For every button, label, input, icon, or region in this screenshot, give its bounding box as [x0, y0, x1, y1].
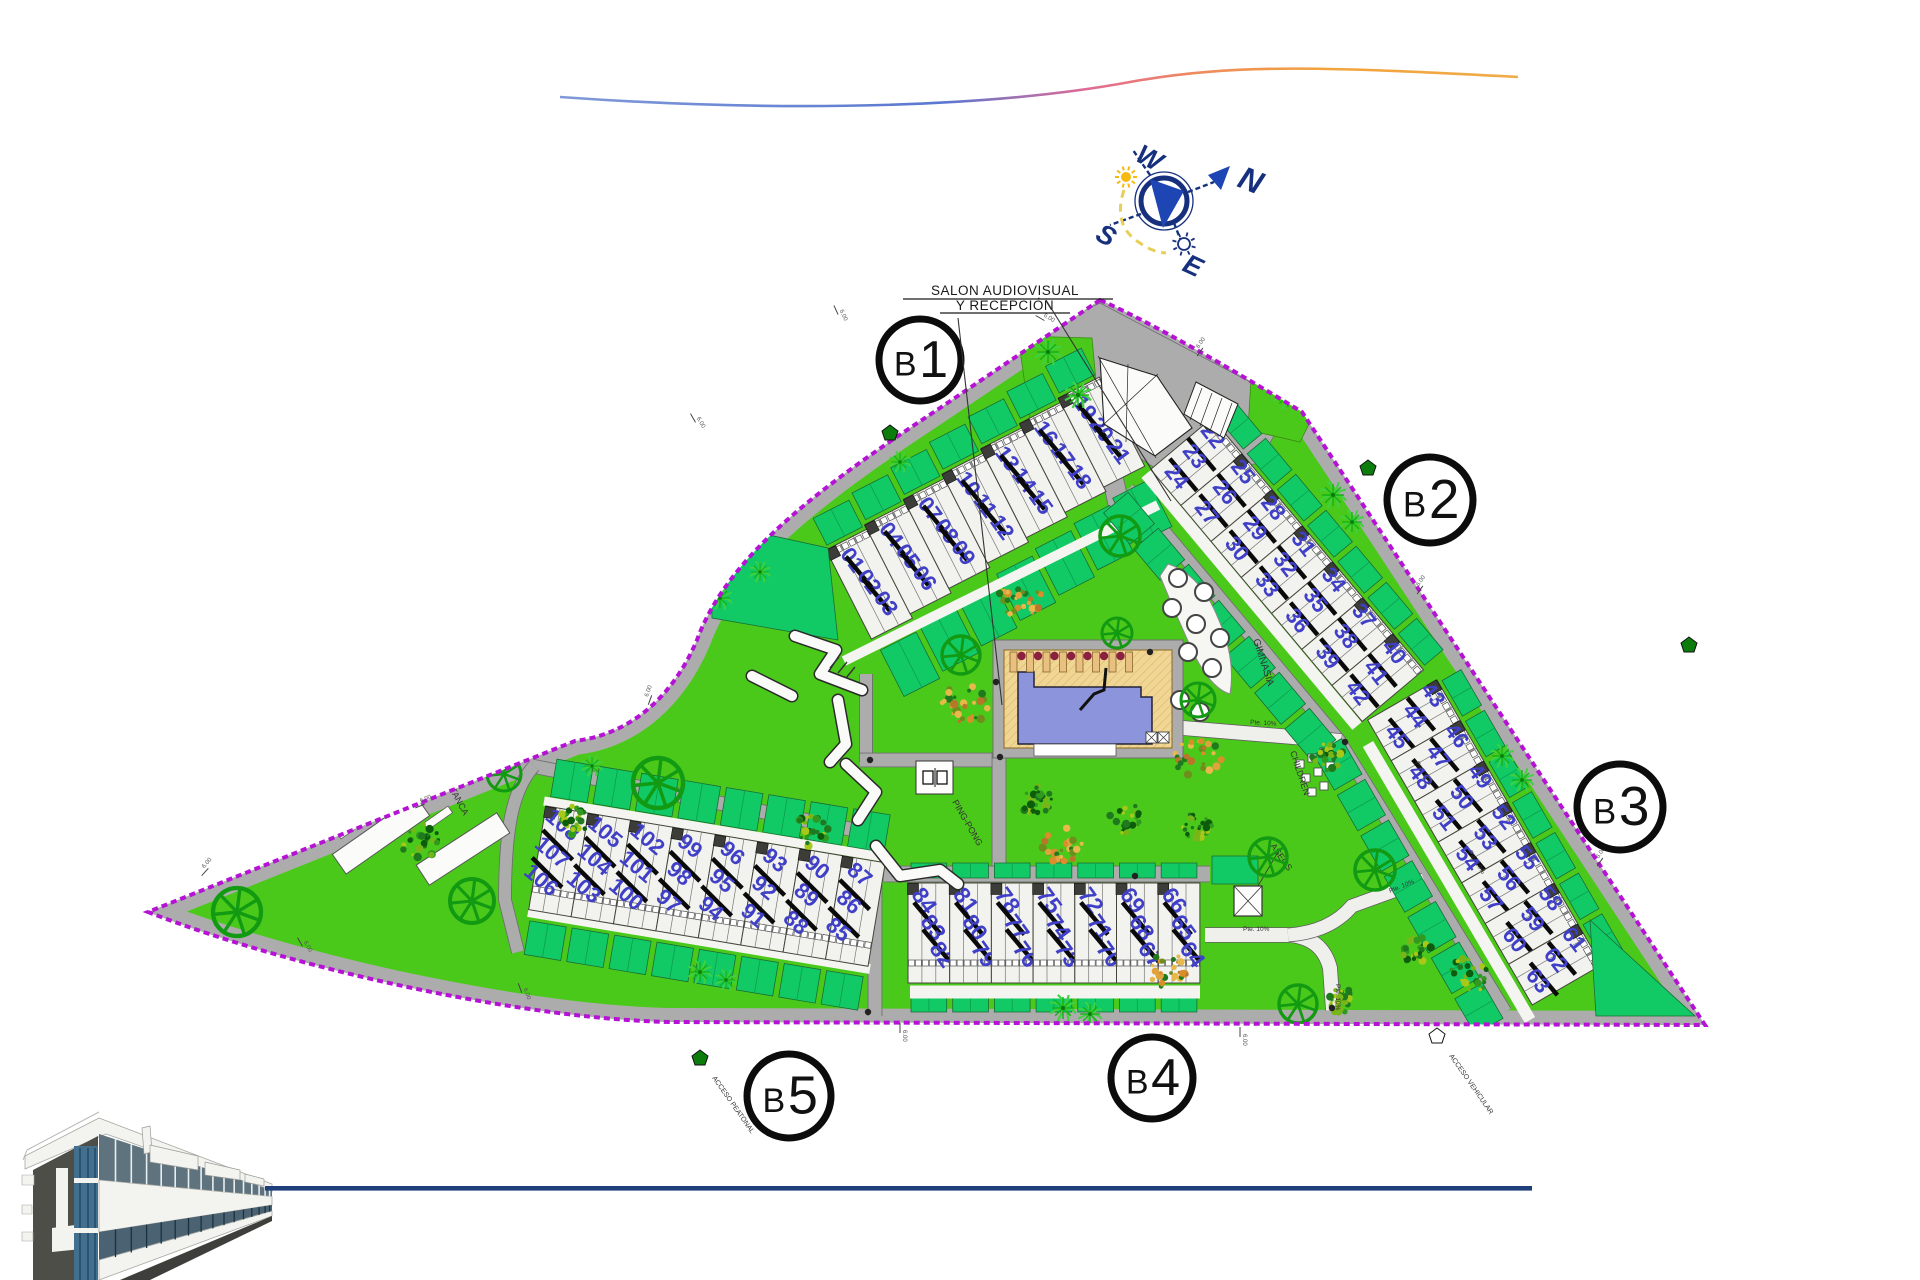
svg-text:4: 4 [1151, 1049, 1180, 1107]
svg-text:3: 3 [1619, 775, 1650, 837]
svg-text:6.00: 6.00 [1241, 1034, 1247, 1046]
svg-text:Pte. 10%: Pte. 10% [1243, 926, 1270, 933]
svg-text:6.00: 6.00 [901, 1030, 907, 1042]
svg-text:SALON AUDIOVISUAL: SALON AUDIOVISUAL [931, 283, 1079, 298]
svg-text:B: B [1403, 485, 1426, 524]
svg-text:Y RECEPCIÓN: Y RECEPCIÓN [956, 298, 1054, 313]
svg-text:Pte. 10%: Pte. 10% [1334, 984, 1341, 1011]
svg-text:5: 5 [788, 1066, 818, 1126]
svg-text:B: B [894, 346, 917, 384]
svg-text:2: 2 [1429, 468, 1460, 530]
svg-text:B: B [1126, 1064, 1149, 1102]
svg-text:B: B [763, 1082, 786, 1120]
svg-text:B: B [1593, 792, 1616, 831]
svg-text:1: 1 [919, 331, 948, 389]
